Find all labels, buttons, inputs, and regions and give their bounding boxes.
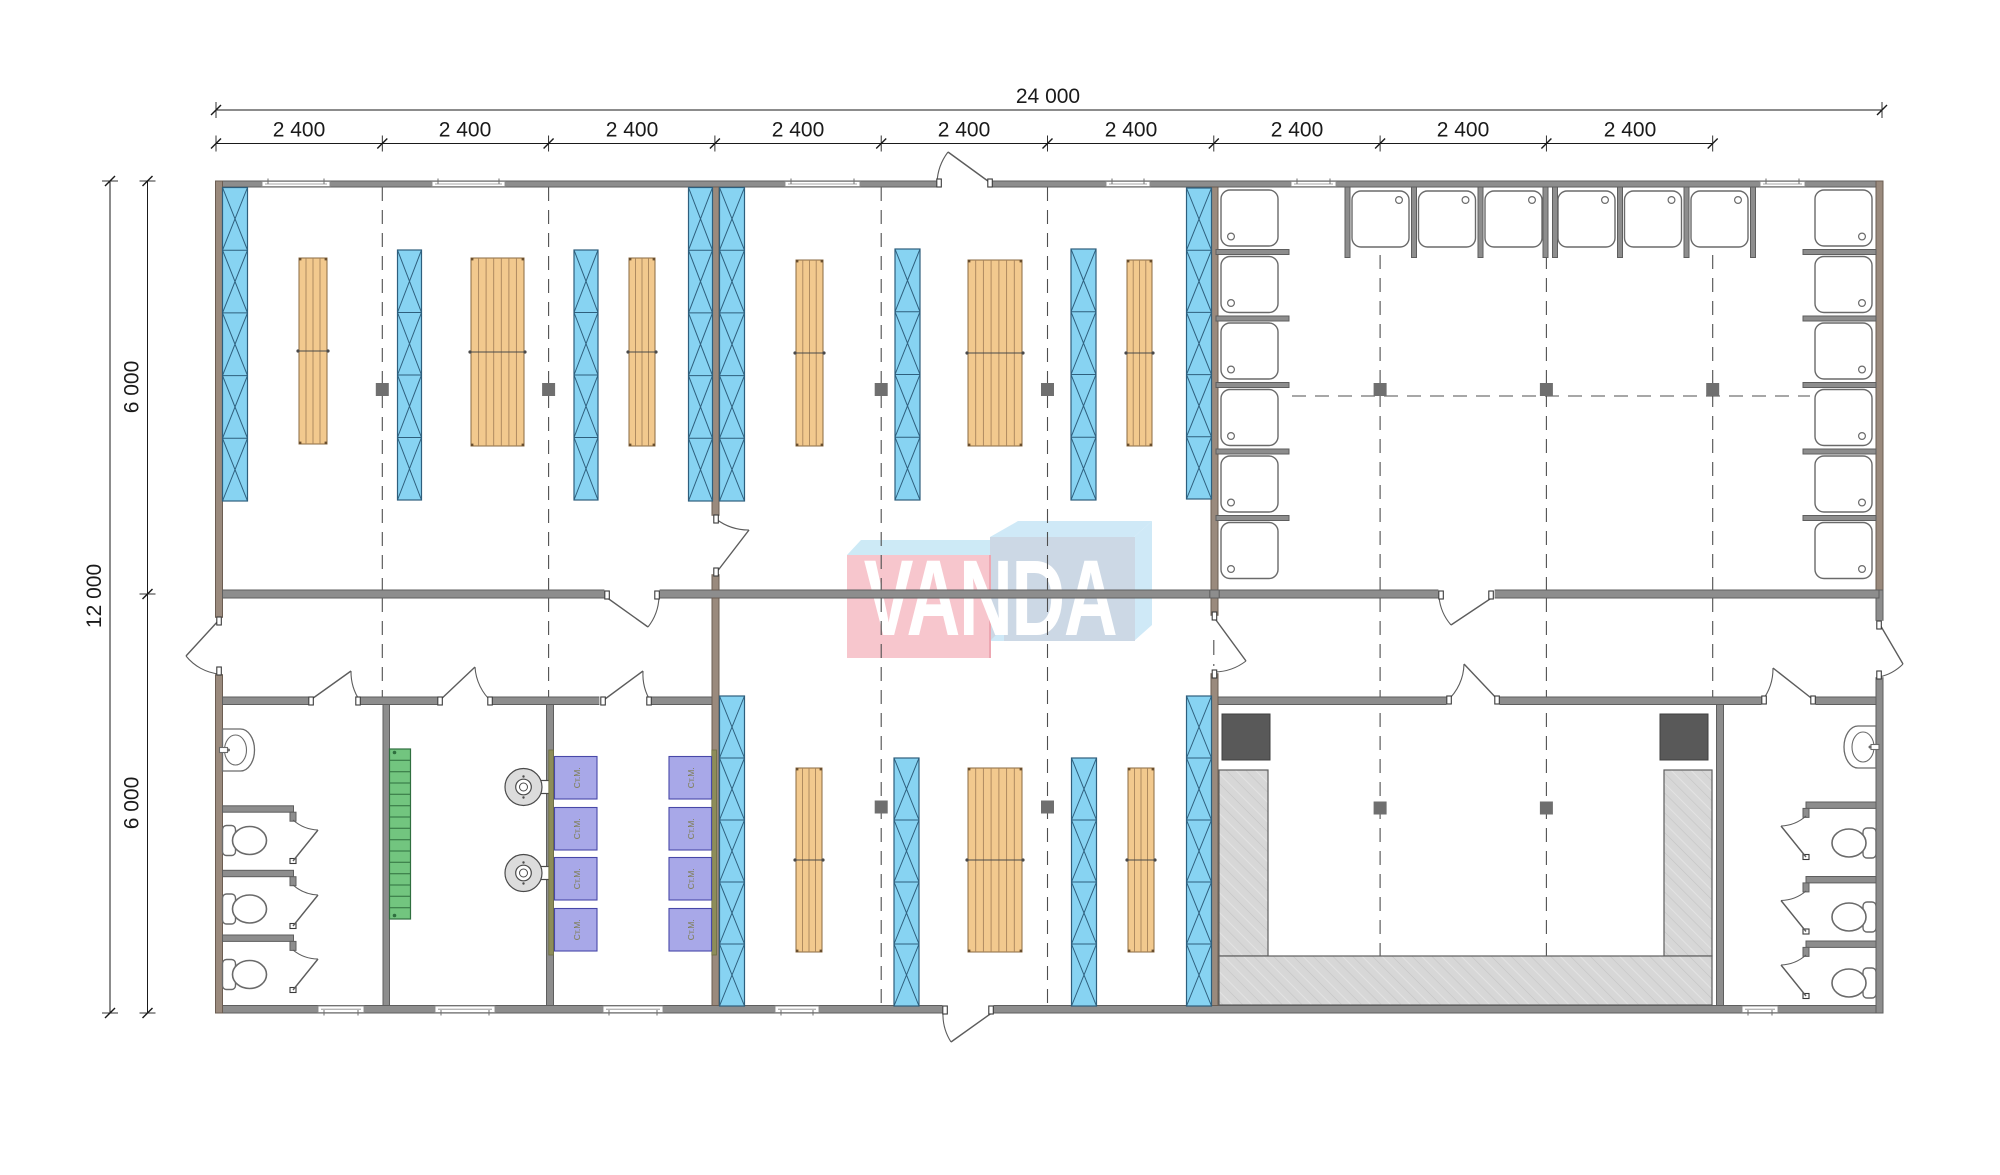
svg-text:2 400: 2 400 xyxy=(606,119,659,142)
svg-text:Ст.М.: Ст.М. xyxy=(686,919,696,940)
svg-text:2 400: 2 400 xyxy=(772,119,825,142)
svg-text:12 000: 12 000 xyxy=(83,564,106,628)
svg-text:2 400: 2 400 xyxy=(273,119,326,142)
svg-text:Ст.М.: Ст.М. xyxy=(572,767,582,788)
svg-text:6 000: 6 000 xyxy=(121,361,144,414)
svg-text:Ст.М.: Ст.М. xyxy=(686,767,696,788)
svg-text:Ст.М.: Ст.М. xyxy=(686,868,696,889)
svg-text:2 400: 2 400 xyxy=(1105,119,1158,142)
svg-text:6 000: 6 000 xyxy=(121,777,144,830)
svg-text:Ст.М.: Ст.М. xyxy=(572,868,582,889)
svg-text:Ст.М.: Ст.М. xyxy=(572,818,582,839)
svg-text:2 400: 2 400 xyxy=(938,119,991,142)
svg-text:Ст.М.: Ст.М. xyxy=(572,919,582,940)
svg-text:Ст.М.: Ст.М. xyxy=(686,818,696,839)
svg-text:2 400: 2 400 xyxy=(1437,119,1490,142)
svg-text:2 400: 2 400 xyxy=(1271,119,1324,142)
svg-text:2 400: 2 400 xyxy=(439,119,492,142)
svg-text:2 400: 2 400 xyxy=(1604,119,1657,142)
svg-text:24 000: 24 000 xyxy=(1016,85,1080,108)
